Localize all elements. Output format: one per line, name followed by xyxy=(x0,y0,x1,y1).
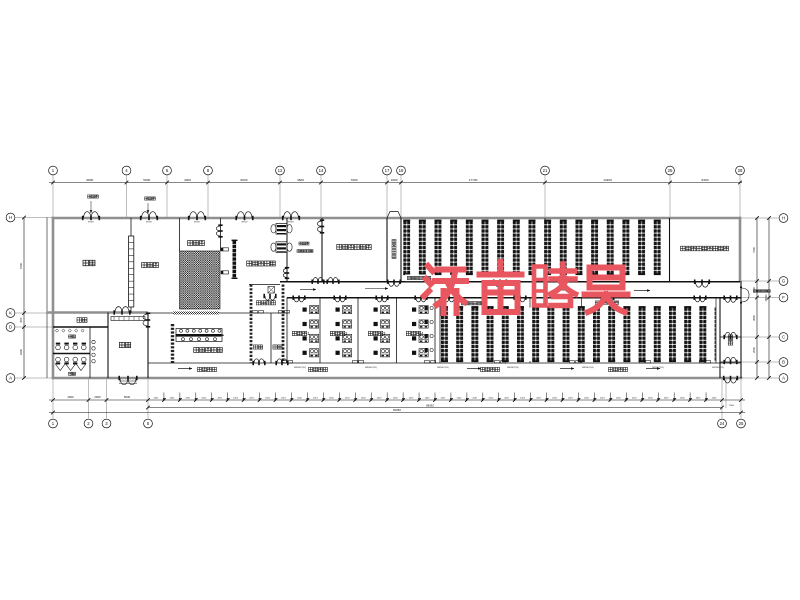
svg-text:MRFB07(2D): MRFB07(2D) xyxy=(294,367,306,369)
svg-text:MRFB07(2D): MRFB07(2D) xyxy=(712,367,724,369)
svg-text:W7527: W7527 xyxy=(88,222,94,224)
svg-text:24: 24 xyxy=(720,421,725,426)
svg-text:1600: 1600 xyxy=(488,397,494,399)
svg-text:1600: 1600 xyxy=(616,397,622,399)
svg-text:1600: 1600 xyxy=(425,397,431,399)
svg-text:9800: 9800 xyxy=(86,178,93,182)
svg-text:12: 12 xyxy=(278,168,283,173)
svg-text:B: B xyxy=(782,360,785,365)
svg-text:5000: 5000 xyxy=(124,395,131,399)
svg-text:18: 18 xyxy=(399,168,404,173)
svg-text:2607: 2607 xyxy=(504,397,510,399)
svg-text:16000: 16000 xyxy=(764,294,768,302)
svg-text:2607: 2607 xyxy=(185,397,191,399)
svg-text:2607: 2607 xyxy=(154,397,160,399)
svg-text:1600: 1600 xyxy=(712,397,718,399)
svg-text:2607: 2607 xyxy=(217,397,223,399)
svg-text:2607: 2607 xyxy=(409,397,415,399)
svg-text:8000: 8000 xyxy=(241,178,248,182)
svg-text:2607: 2607 xyxy=(281,397,287,399)
svg-text:800: 800 xyxy=(19,317,23,322)
svg-text:W7527: W7527 xyxy=(242,222,248,224)
svg-text:2607: 2607 xyxy=(664,397,670,399)
svg-text:1600: 1600 xyxy=(265,397,271,399)
svg-text:7600: 7600 xyxy=(351,178,358,182)
svg-text:2607: 2607 xyxy=(345,397,351,399)
svg-text:2607: 2607 xyxy=(249,397,255,399)
svg-text:4000: 4000 xyxy=(184,178,191,182)
svg-text:1600: 1600 xyxy=(329,397,335,399)
svg-text:8300: 8300 xyxy=(702,178,709,182)
svg-text:1600: 1600 xyxy=(680,397,686,399)
svg-text:7200: 7200 xyxy=(19,262,23,269)
svg-text:1600: 1600 xyxy=(457,397,463,399)
svg-text:3950: 3950 xyxy=(752,315,756,321)
svg-text:H: H xyxy=(9,215,12,220)
svg-text:MRFB07(2D): MRFB07(2D) xyxy=(437,367,449,369)
svg-text:W7527: W7527 xyxy=(146,222,152,224)
svg-text:28: 28 xyxy=(738,168,743,173)
svg-text:K: K xyxy=(9,311,12,316)
svg-text:25: 25 xyxy=(739,421,744,426)
svg-text:2607: 2607 xyxy=(472,397,478,399)
svg-text:7500: 7500 xyxy=(752,247,756,253)
svg-text:D: D xyxy=(9,325,12,330)
svg-text:H: H xyxy=(782,216,785,221)
svg-text:1600: 1600 xyxy=(201,397,207,399)
svg-text:25: 25 xyxy=(668,168,673,173)
svg-text:2607: 2607 xyxy=(377,397,383,399)
svg-text:1600: 1600 xyxy=(648,397,654,399)
svg-text:4300: 4300 xyxy=(67,395,74,399)
svg-text:17700: 17700 xyxy=(469,178,478,182)
svg-text:W7527: W7527 xyxy=(288,222,294,224)
svg-text:2000: 2000 xyxy=(94,395,101,399)
svg-text:17: 17 xyxy=(385,168,390,173)
svg-text:1600: 1600 xyxy=(297,397,303,399)
svg-text:F: F xyxy=(782,295,785,300)
svg-text:2607: 2607 xyxy=(696,397,702,399)
svg-text:C: C xyxy=(782,335,785,340)
svg-text:W7527: W7527 xyxy=(194,222,200,224)
svg-text:14: 14 xyxy=(319,168,324,173)
svg-text:MRFB07(2D): MRFB07(2D) xyxy=(365,367,377,369)
svg-text:5000: 5000 xyxy=(143,178,150,182)
svg-text:1600: 1600 xyxy=(393,397,399,399)
svg-text:1600: 1600 xyxy=(361,397,367,399)
svg-text:1600: 1600 xyxy=(170,397,176,399)
svg-text:68092: 68092 xyxy=(426,403,434,407)
svg-text:4500: 4500 xyxy=(297,178,304,182)
svg-text:2607: 2607 xyxy=(568,397,574,399)
svg-text:A: A xyxy=(9,376,12,381)
svg-text:2500: 2500 xyxy=(752,347,756,353)
svg-text:14400: 14400 xyxy=(603,178,612,182)
svg-text:1600: 1600 xyxy=(520,397,526,399)
svg-text:1600: 1600 xyxy=(233,397,239,399)
svg-text:A: A xyxy=(782,376,785,381)
svg-text:21: 21 xyxy=(543,168,548,173)
svg-text:1800: 1800 xyxy=(391,178,398,182)
svg-text:2000: 2000 xyxy=(729,405,735,407)
svg-text:2607: 2607 xyxy=(441,397,447,399)
svg-text:1600: 1600 xyxy=(584,397,590,399)
svg-text:1600: 1600 xyxy=(552,397,558,399)
svg-text:2607: 2607 xyxy=(313,397,319,399)
svg-text:2607: 2607 xyxy=(632,397,638,399)
svg-text:81850: 81850 xyxy=(393,408,401,412)
svg-text:MRFB07(2D): MRFB07(2D) xyxy=(507,367,519,369)
svg-text:MRFB07(2D): MRFB07(2D) xyxy=(582,367,594,369)
svg-text:2607: 2607 xyxy=(536,397,542,399)
svg-text:2607: 2607 xyxy=(600,397,606,399)
svg-text:4300: 4300 xyxy=(19,348,23,355)
